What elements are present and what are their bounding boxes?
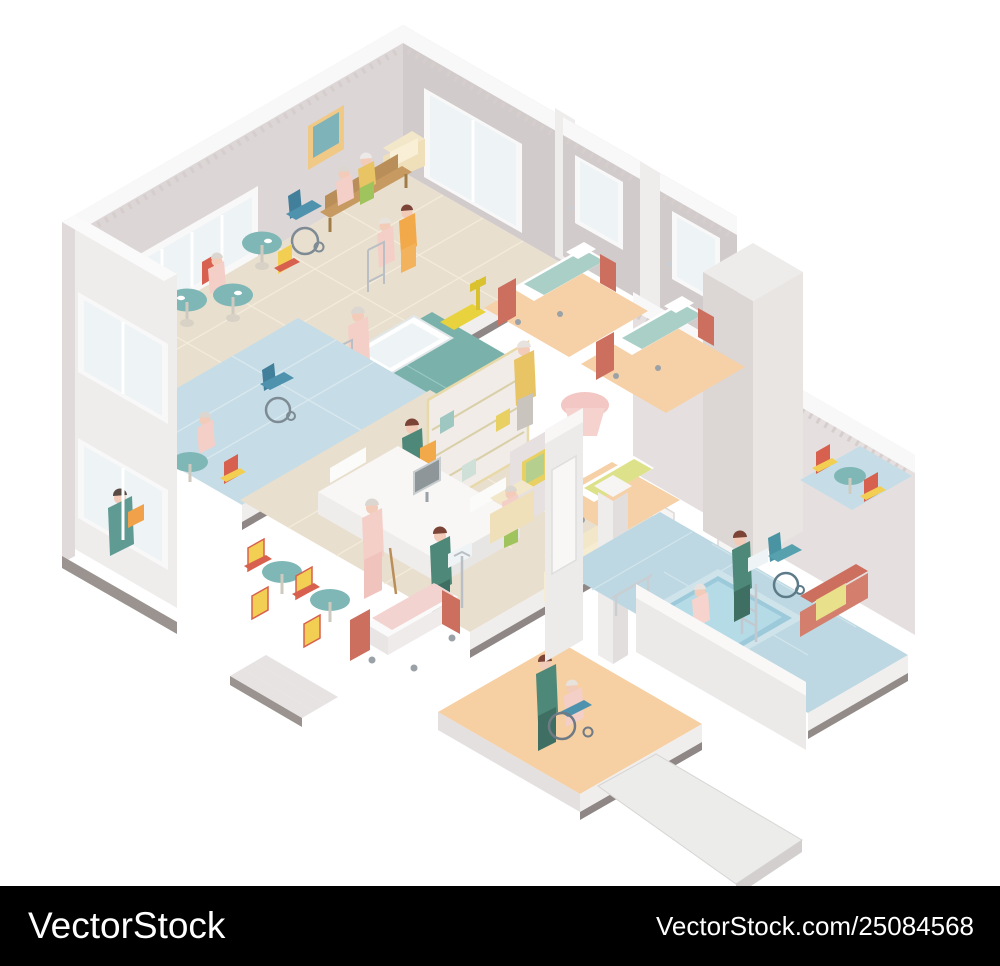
vectorstock-logo: VectorStock: [28, 886, 225, 966]
stock-image-preview: VectorStock VectorStock.com/25084568: [0, 0, 1000, 966]
exterior-left-wall: [62, 215, 177, 634]
elevator-shaft: [703, 243, 803, 560]
entrance-ramp: [598, 754, 802, 896]
vectorstock-credit: VectorStock.com/25084568: [656, 886, 974, 966]
steps: [230, 655, 338, 727]
watermark-bar: VectorStock VectorStock.com/25084568: [0, 886, 1000, 966]
nursing-home-illustration: [0, 0, 1000, 966]
lobby-dining-tables: [244, 539, 350, 647]
